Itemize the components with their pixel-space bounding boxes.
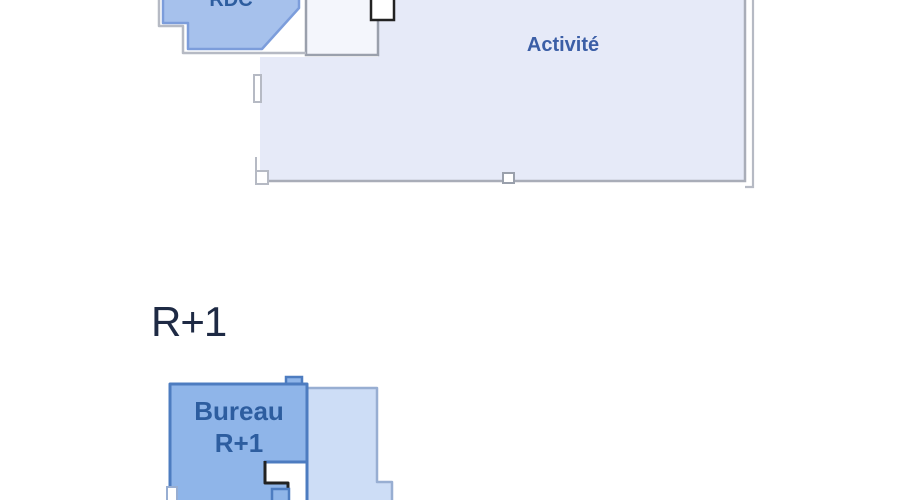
dark-outline-box	[371, 0, 394, 20]
room-bureau-r1-label-line1: Bureau	[194, 396, 284, 426]
wall-opening-left	[254, 75, 261, 102]
floor-plan-svg: Activité RDC R+1 Bureau R+1	[0, 0, 900, 500]
notch-bottom-left-r1	[167, 487, 177, 500]
corner-notch-bottom-left	[256, 171, 268, 184]
wall-notch-bottom	[503, 173, 514, 183]
floor-plan: Activité RDC R+1 Bureau R+1	[0, 0, 900, 500]
room-activite-label: Activité	[527, 34, 599, 56]
small-blue-element	[272, 489, 289, 500]
room-bureau-r1-label-line2: R+1	[215, 428, 263, 458]
room-annex-r1	[300, 388, 392, 500]
room-bureau-rdc-label: RDC	[209, 0, 252, 11]
floor-heading-r1: R+1	[151, 298, 226, 345]
room-white-fill	[306, 0, 378, 55]
